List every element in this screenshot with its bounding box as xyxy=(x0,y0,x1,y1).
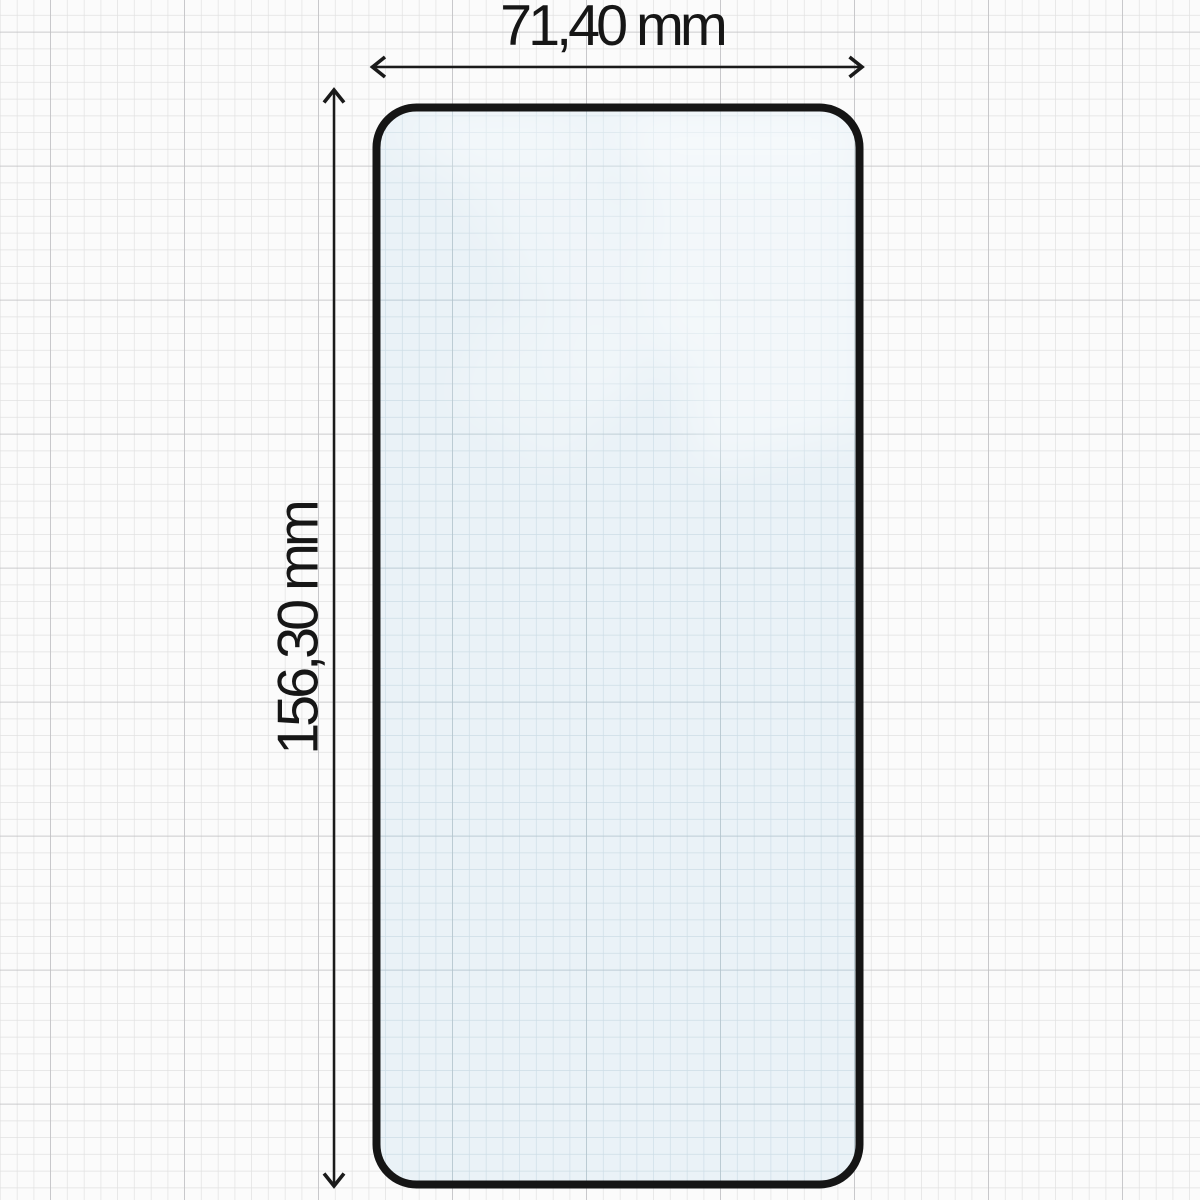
svg-text:156,30 mm: 156,30 mm xyxy=(267,502,331,755)
svg-text:71,40 mm: 71,40 mm xyxy=(500,0,725,58)
